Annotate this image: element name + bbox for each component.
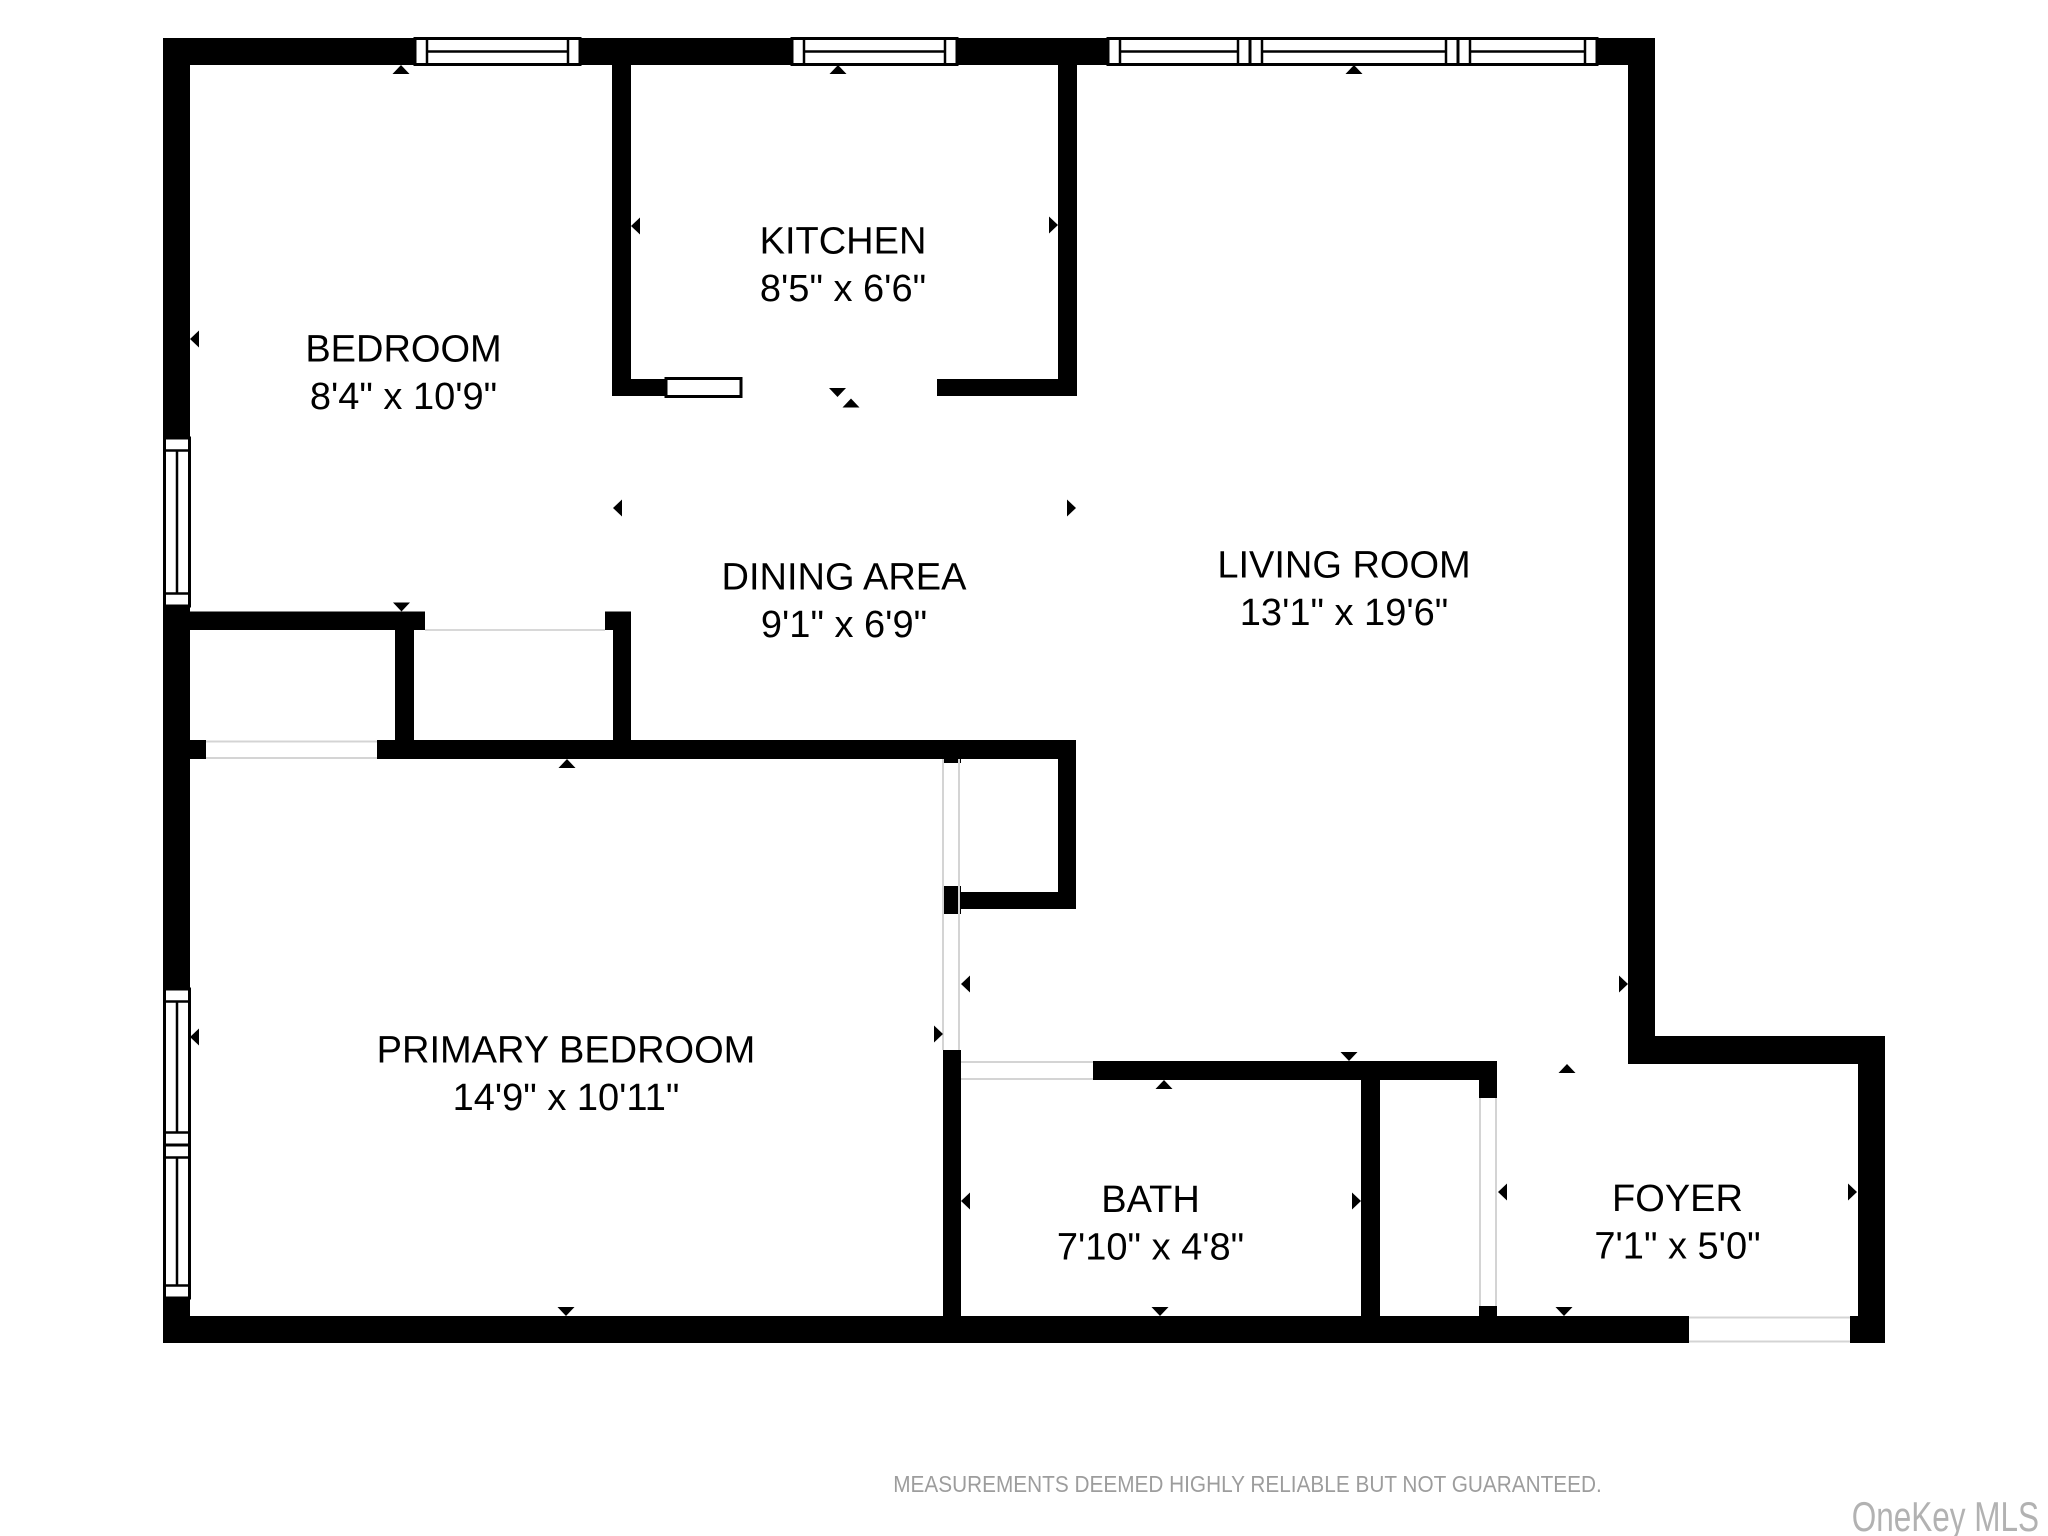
svg-text:8'4" x 10'9": 8'4" x 10'9": [310, 376, 497, 418]
svg-text:BEDROOM: BEDROOM: [305, 328, 501, 370]
svg-text:7'1" x 5'0": 7'1" x 5'0": [1594, 1226, 1760, 1268]
svg-text:PRIMARY BEDROOM: PRIMARY BEDROOM: [377, 1030, 756, 1072]
svg-text:14'9" x 10'11": 14'9" x 10'11": [453, 1077, 680, 1119]
svg-text:13'1" x 19'6": 13'1" x 19'6": [1240, 592, 1448, 634]
svg-text:8'5" x 6'6": 8'5" x 6'6": [760, 268, 926, 310]
svg-text:BATH: BATH: [1101, 1179, 1200, 1221]
svg-text:FOYER: FOYER: [1612, 1178, 1743, 1220]
svg-text:KITCHEN: KITCHEN: [760, 221, 927, 263]
svg-text:9'1" x 6'9": 9'1" x 6'9": [761, 604, 927, 646]
svg-text:LIVING ROOM: LIVING ROOM: [1217, 545, 1470, 587]
svg-text:DINING AREA: DINING AREA: [722, 557, 968, 599]
svg-text:OneKey MLS: OneKey MLS: [1852, 1493, 2039, 1536]
svg-text:MEASUREMENTS DEEMED HIGHLY REL: MEASUREMENTS DEEMED HIGHLY RELIABLE BUT …: [893, 1471, 1602, 1497]
svg-text:7'10" x 4'8": 7'10" x 4'8": [1057, 1227, 1244, 1269]
